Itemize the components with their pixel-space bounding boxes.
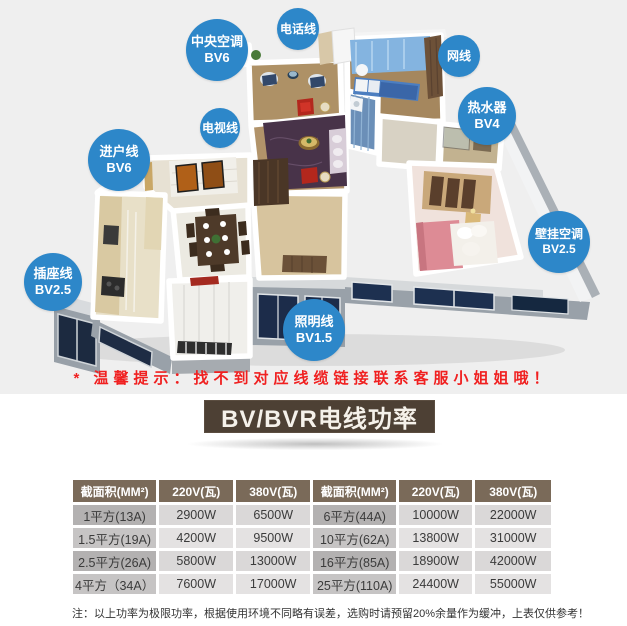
label-wall-ac: 壁挂空调 BV2.5 [528,211,590,273]
label-socket-line: 插座线 BV2.5 [24,253,82,311]
table-cell: 7600W [159,574,233,594]
table-cell: 9500W [236,528,310,548]
header-cell: 截面积(MM²) [73,480,156,502]
label-network-line: 网线 [438,35,480,77]
table-cell: 2900W [159,505,233,525]
header-cell: 380V(瓦) [236,480,310,502]
table-cell: 25平方(110A) [313,574,396,594]
table-cell: 18900W [399,551,472,571]
table-cell: 6平方(44A) [313,505,396,525]
table-cell: 42000W [475,551,551,571]
title-shadow [150,436,480,452]
table-cell: 1.5平方(19A) [73,528,156,548]
table-header-row: 截面积(MM²) 220V(瓦) 380V(瓦) 截面积(MM²) 220V(瓦… [73,480,551,502]
header-cell: 380V(瓦) [475,480,551,502]
table-cell: 13000W [236,551,310,571]
header-cell: 截面积(MM²) [313,480,396,502]
label-central-ac: 中央空调 BV6 [186,19,248,81]
table-footnote: 注：以上功率为极限功率，根据使用环境不同略有误差，选购时请预留20%余量作为缓冲… [72,605,572,621]
label-tv-line: 电视线 [200,108,240,148]
label-entry-line: 进户线 BV6 [88,129,150,191]
table-cell: 6500W [236,505,310,525]
table-cell: 4平方（34A） [73,574,156,594]
table-cell: 24400W [399,574,472,594]
label-water-heater: 热水器 BV4 [458,87,516,145]
table-row: 1平方(13A) 2900W 6500W 6平方(44A) 10000W 220… [73,505,551,525]
table-cell: 55000W [475,574,551,594]
table-row: 1.5平方(19A) 4200W 9500W 10平方(62A) 13800W … [73,528,551,548]
label-phone-line: 电话线 [277,8,319,50]
table-cell: 10000W [399,505,472,525]
table-cell: 10平方(62A) [313,528,396,548]
header-cell: 220V(瓦) [159,480,233,502]
header-cell: 220V(瓦) [399,480,472,502]
table-row: 2.5平方(26A) 5800W 13000W 16平方(85A) 18900W… [73,551,551,571]
table-cell: 22000W [475,505,551,525]
label-lighting-line: 照明线 BV1.5 [283,299,345,361]
table-cell: 2.5平方(26A) [73,551,156,571]
table-cell: 31000W [475,528,551,548]
table-cell: 5800W [159,551,233,571]
table-cell: 1平方(13A) [73,505,156,525]
product-infographic: 中央空调 BV6 电话线 网线 热水器 BV4 电视线 进户线 BV6 插座线 … [0,0,627,626]
table-title: BV/BVR电线功率 [204,400,435,433]
power-rating-table: 截面积(MM²) 220V(瓦) 380V(瓦) 截面积(MM²) 220V(瓦… [70,477,554,597]
warm-tip-text: * 温馨提示：找不到对应线缆链接联系客服小姐姐哦！ [0,367,627,388]
table-cell: 4200W [159,528,233,548]
table-cell: 13800W [399,528,472,548]
table-cell: 17000W [236,574,310,594]
table-row: 4平方（34A） 7600W 17000W 25平方(110A) 24400W … [73,574,551,594]
table-cell: 16平方(85A) [313,551,396,571]
